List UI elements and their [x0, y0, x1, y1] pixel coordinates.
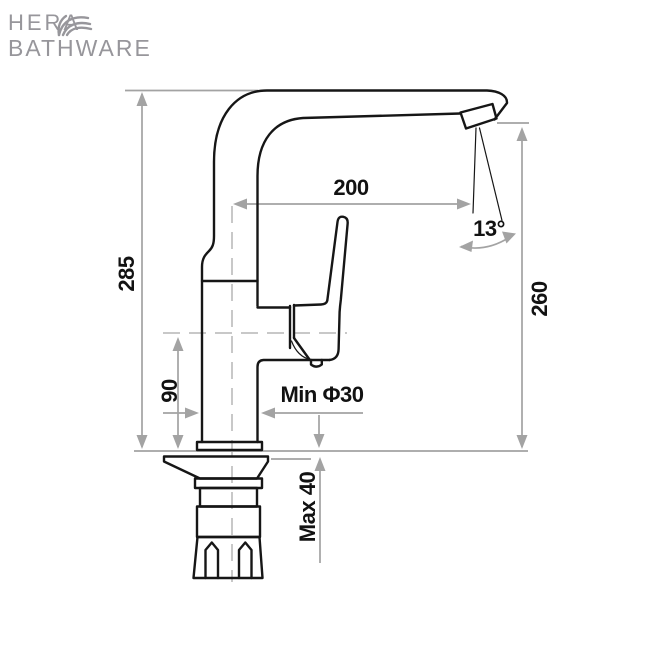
arrow-90-up	[173, 337, 184, 351]
arrow-minhole-left	[261, 408, 275, 419]
housing-top-right	[294, 301, 327, 306]
label-spout-reach: 200	[333, 175, 368, 200]
product-diagram-page: HERA BATHWARE	[0, 0, 650, 650]
arrow-minhole-down	[314, 434, 325, 448]
spout-underside	[258, 114, 461, 307]
arrow-285-up	[137, 92, 148, 106]
arrow-200-right	[457, 199, 471, 210]
arrow-max40-up	[315, 457, 326, 471]
nut-castellation-2	[239, 543, 252, 579]
nut-castellation-1	[206, 543, 219, 579]
arrow-minhole-right	[185, 408, 199, 419]
dimension-arrows	[137, 92, 528, 471]
handle-lever	[327, 217, 347, 360]
label-min-hole: Min Φ30	[280, 382, 363, 407]
mounting-nut	[197, 507, 260, 538]
arrow-260-down	[517, 435, 528, 449]
arrow-285-down	[137, 435, 148, 449]
mounting-flange	[164, 457, 268, 479]
label-body-height: 90	[157, 379, 182, 403]
faucet-drawing: 200 285 90 260 13° Min Φ30 Max 40	[0, 0, 650, 650]
arrow-200-left	[233, 199, 247, 210]
arrow-260-up	[517, 127, 528, 141]
arrow-arc-left	[459, 241, 473, 253]
angle-ref-line-left	[473, 128, 476, 213]
label-spout-angle: 13°	[473, 216, 505, 241]
base-plate	[197, 442, 262, 450]
label-outlet-height: 260	[527, 281, 552, 316]
angle-ref-line-right	[480, 128, 503, 221]
dimension-lines	[125, 91, 529, 583]
label-max-deck: Max 40	[295, 472, 320, 543]
label-overall-height: 285	[114, 256, 139, 291]
spout-aerator	[461, 104, 497, 129]
washer-ring	[195, 479, 262, 489]
threaded-shank	[200, 488, 257, 507]
arrow-90-down	[173, 435, 184, 449]
mounting-hardware	[164, 442, 268, 578]
